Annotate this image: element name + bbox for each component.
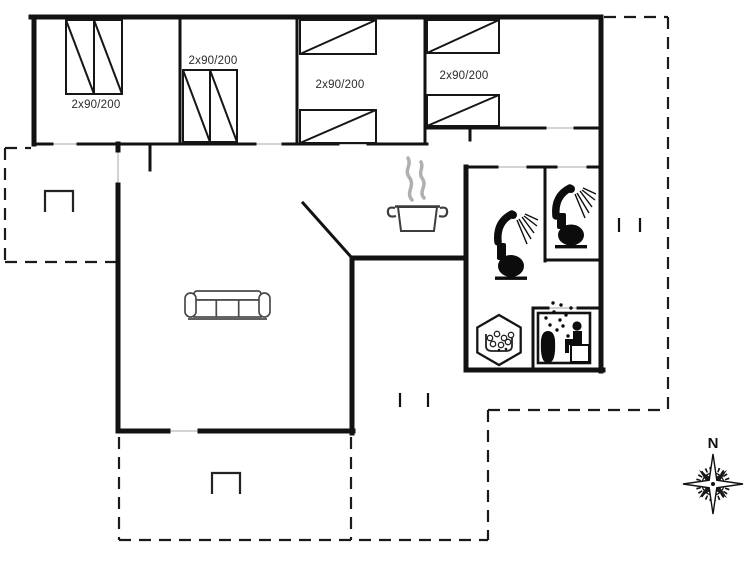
double-bed-icon <box>183 70 237 142</box>
terrace-outline-left <box>5 148 116 262</box>
compass-north-label: N <box>708 435 719 452</box>
toilet-icon <box>555 213 587 248</box>
terrace-bench-icon <box>45 191 240 494</box>
sauna-room <box>538 301 590 363</box>
sofa-icon <box>185 291 270 319</box>
toilet-icon <box>495 243 527 280</box>
bed-size-label: 2x90/200 <box>72 99 121 111</box>
bed-size-label: 2x90/200 <box>316 79 365 91</box>
floor-plan-drawing: 2x90/200 2x90/200 2x90/200 2x90/200 <box>0 0 755 566</box>
living-room <box>185 291 270 319</box>
shower-icon <box>498 211 538 244</box>
compass-rose-icon: N <box>683 435 743 514</box>
cooking-pot-icon <box>388 158 447 231</box>
bed-size-label: 2x90/200 <box>189 55 238 67</box>
floor-plan-canvas: 2x90/200 2x90/200 2x90/200 2x90/200 <box>0 0 755 566</box>
entry-step-ticks <box>400 218 640 407</box>
bedroom-2: 2x90/200 <box>183 55 237 142</box>
kitchen <box>388 158 447 231</box>
bed-size-label: 2x90/200 <box>440 70 489 82</box>
bathroom-2 <box>555 185 596 248</box>
steam-icon <box>421 162 424 198</box>
steam-icon <box>407 158 412 200</box>
whirlpool-tub-icon <box>477 315 520 365</box>
bedroom-3: 2x90/200 <box>300 20 376 143</box>
sauna-icon <box>538 301 590 363</box>
bedroom-1: 2x90/200 <box>66 20 122 111</box>
bathroom-main <box>495 211 538 280</box>
double-bed-icon <box>66 20 122 94</box>
bedroom-4: 2x90/200 <box>427 20 499 126</box>
